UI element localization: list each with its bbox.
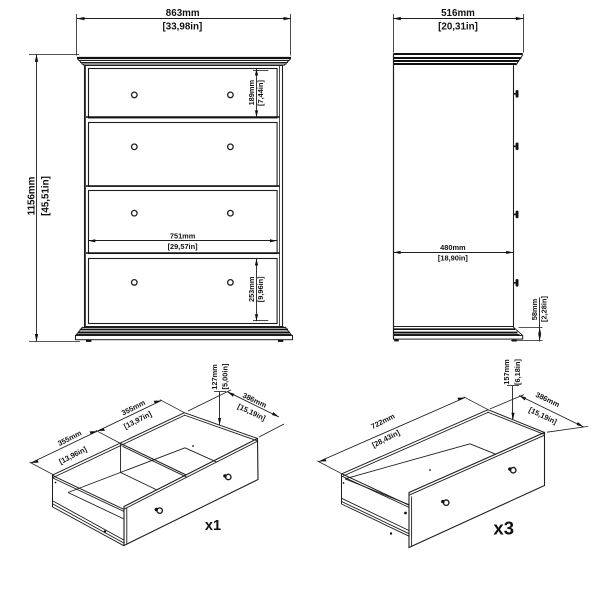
svg-text:1156mm: 1156mm (27, 176, 38, 215)
svg-text:[9,96in]: [9,96in] (256, 276, 265, 302)
svg-text:751mm: 751mm (170, 231, 196, 240)
svg-text:[18,90in]: [18,90in] (438, 254, 469, 263)
svg-text:480mm: 480mm (440, 243, 466, 252)
svg-text:[5,00in]: [5,00in] (220, 363, 229, 389)
svg-text:[45,51in]: [45,51in] (40, 176, 51, 216)
svg-text:[2,28in]: [2,28in] (539, 296, 548, 322)
svg-text:x1: x1 (205, 518, 221, 534)
svg-text:863mm: 863mm (166, 8, 200, 19)
svg-text:127mm: 127mm (210, 364, 219, 390)
svg-text:[7,44in]: [7,44in] (256, 80, 265, 106)
svg-text:516mm: 516mm (441, 8, 475, 19)
svg-text:[29,57in]: [29,57in] (168, 242, 199, 251)
svg-text:[20,31in]: [20,31in] (438, 21, 478, 32)
svg-text:[6,18in]: [6,18in] (513, 359, 522, 385)
svg-text:157mm: 157mm (502, 359, 511, 385)
svg-text:x3: x3 (493, 518, 514, 539)
svg-text:[33,98in]: [33,98in] (163, 21, 203, 32)
svg-text:58mm: 58mm (530, 298, 539, 320)
svg-text:253mm: 253mm (247, 276, 256, 302)
svg-text:189mm: 189mm (247, 80, 256, 106)
